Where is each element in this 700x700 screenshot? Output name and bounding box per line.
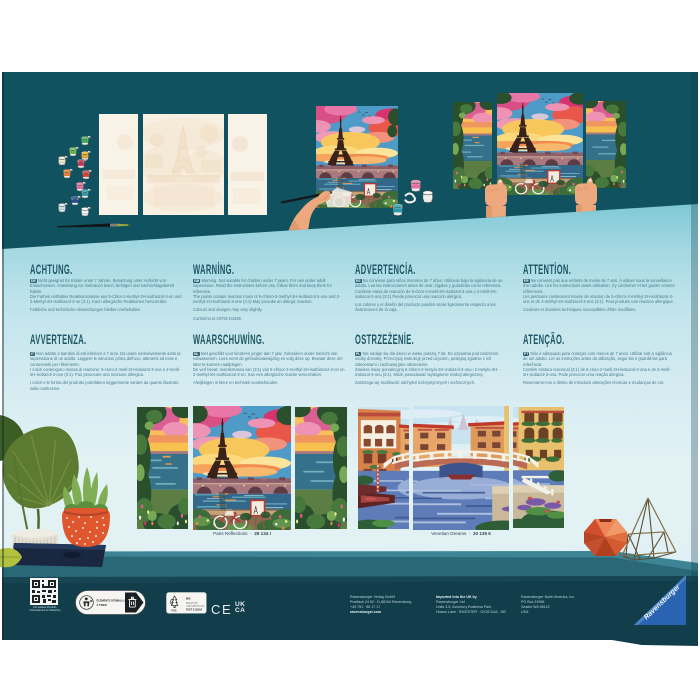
svg-text:FSC: FSC — [172, 609, 177, 613]
svg-text:MIX: MIX — [186, 597, 191, 601]
svg-text:responsible forestry: responsible forestry — [186, 605, 205, 608]
svg-text:FSC® C111262: FSC® C111262 — [186, 609, 203, 612]
svg-text:Supports the: Supports the — [186, 602, 199, 605]
